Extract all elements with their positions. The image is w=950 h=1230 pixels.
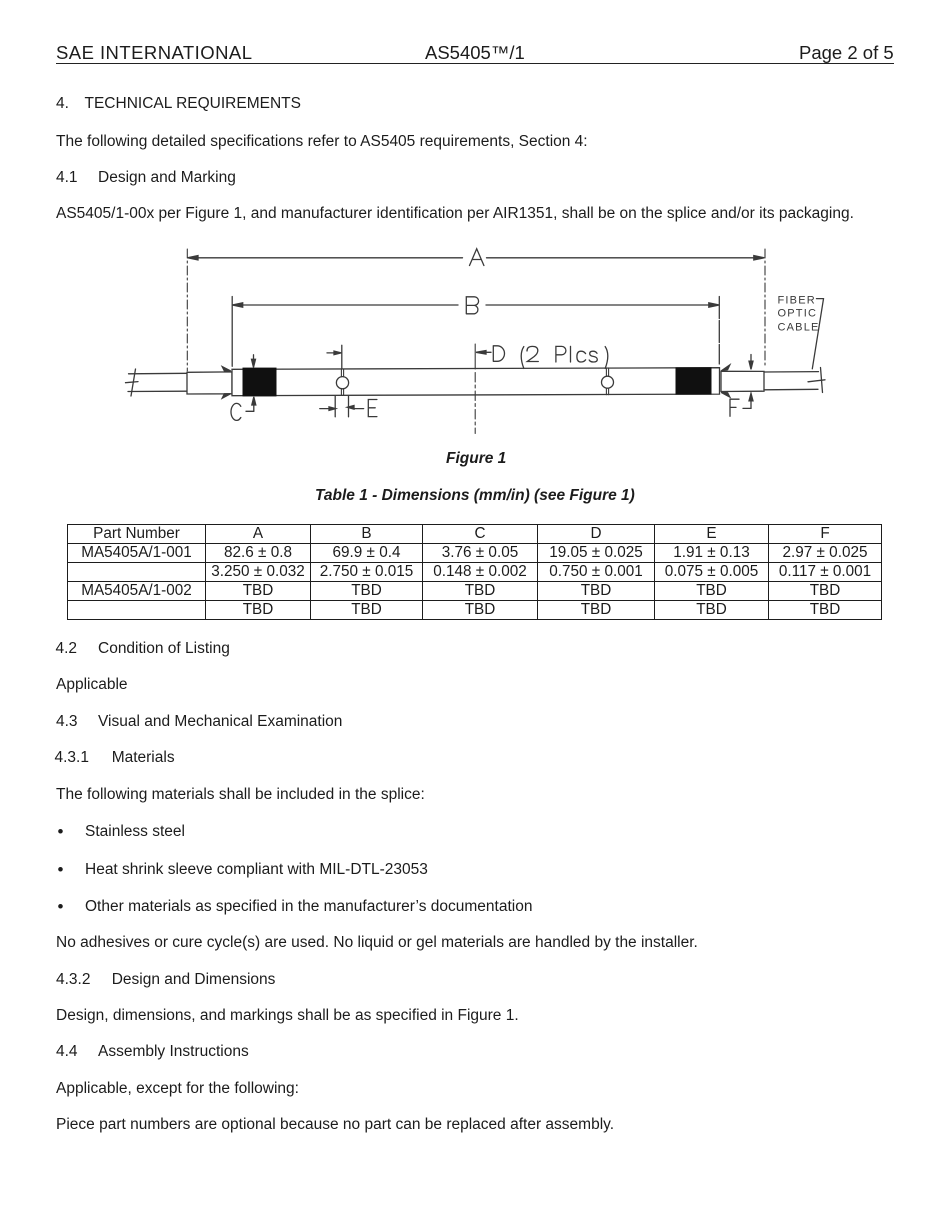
svg-text:FIBER: FIBER [778, 294, 816, 306]
svg-text:OPTIC: OPTIC [778, 308, 818, 320]
svg-text:CABLE: CABLE [778, 322, 820, 334]
